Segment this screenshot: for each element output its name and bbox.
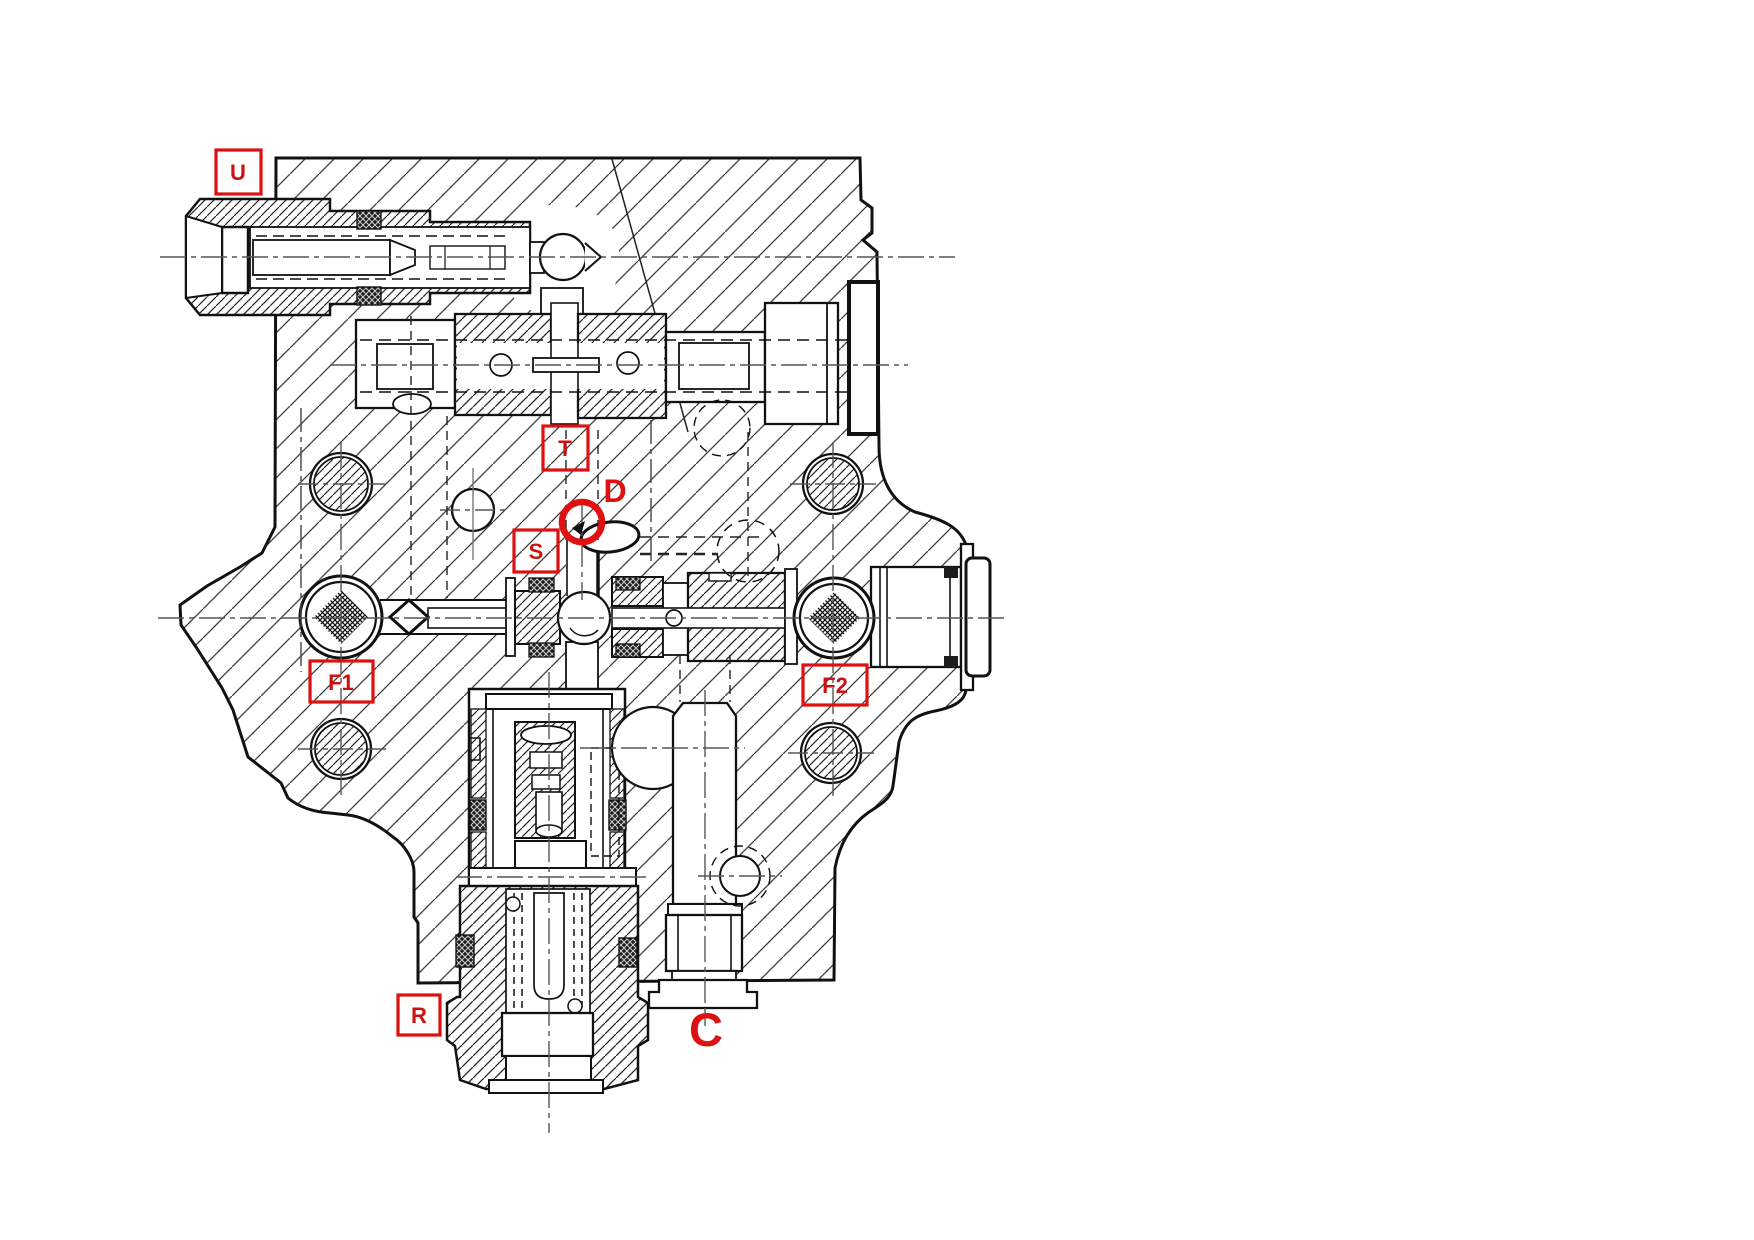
svg-text:D: D — [603, 473, 626, 509]
svg-text:U: U — [230, 160, 246, 185]
svg-text:F1: F1 — [328, 670, 354, 695]
svg-text:S: S — [529, 539, 544, 564]
svg-text:F2: F2 — [822, 673, 848, 698]
svg-text:C: C — [689, 1003, 723, 1056]
svg-text:T: T — [558, 436, 572, 461]
svg-text:R: R — [411, 1003, 427, 1028]
